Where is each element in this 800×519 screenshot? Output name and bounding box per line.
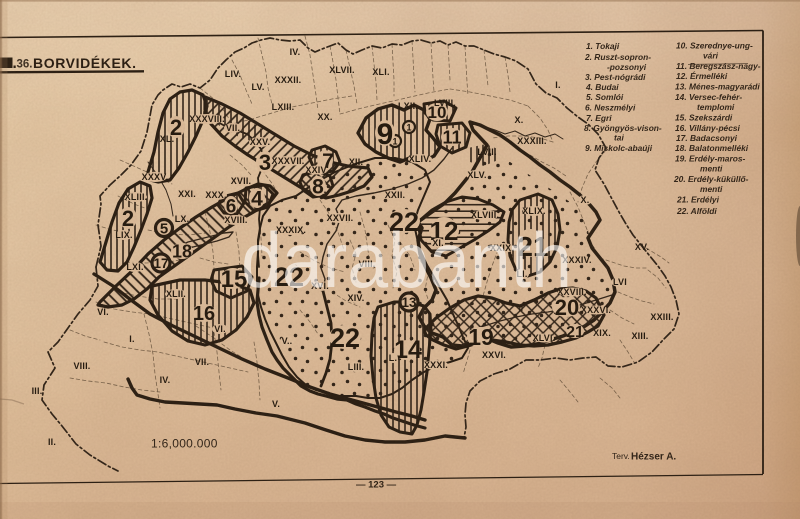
svg-text:darabanth: darabanth [241, 216, 572, 304]
